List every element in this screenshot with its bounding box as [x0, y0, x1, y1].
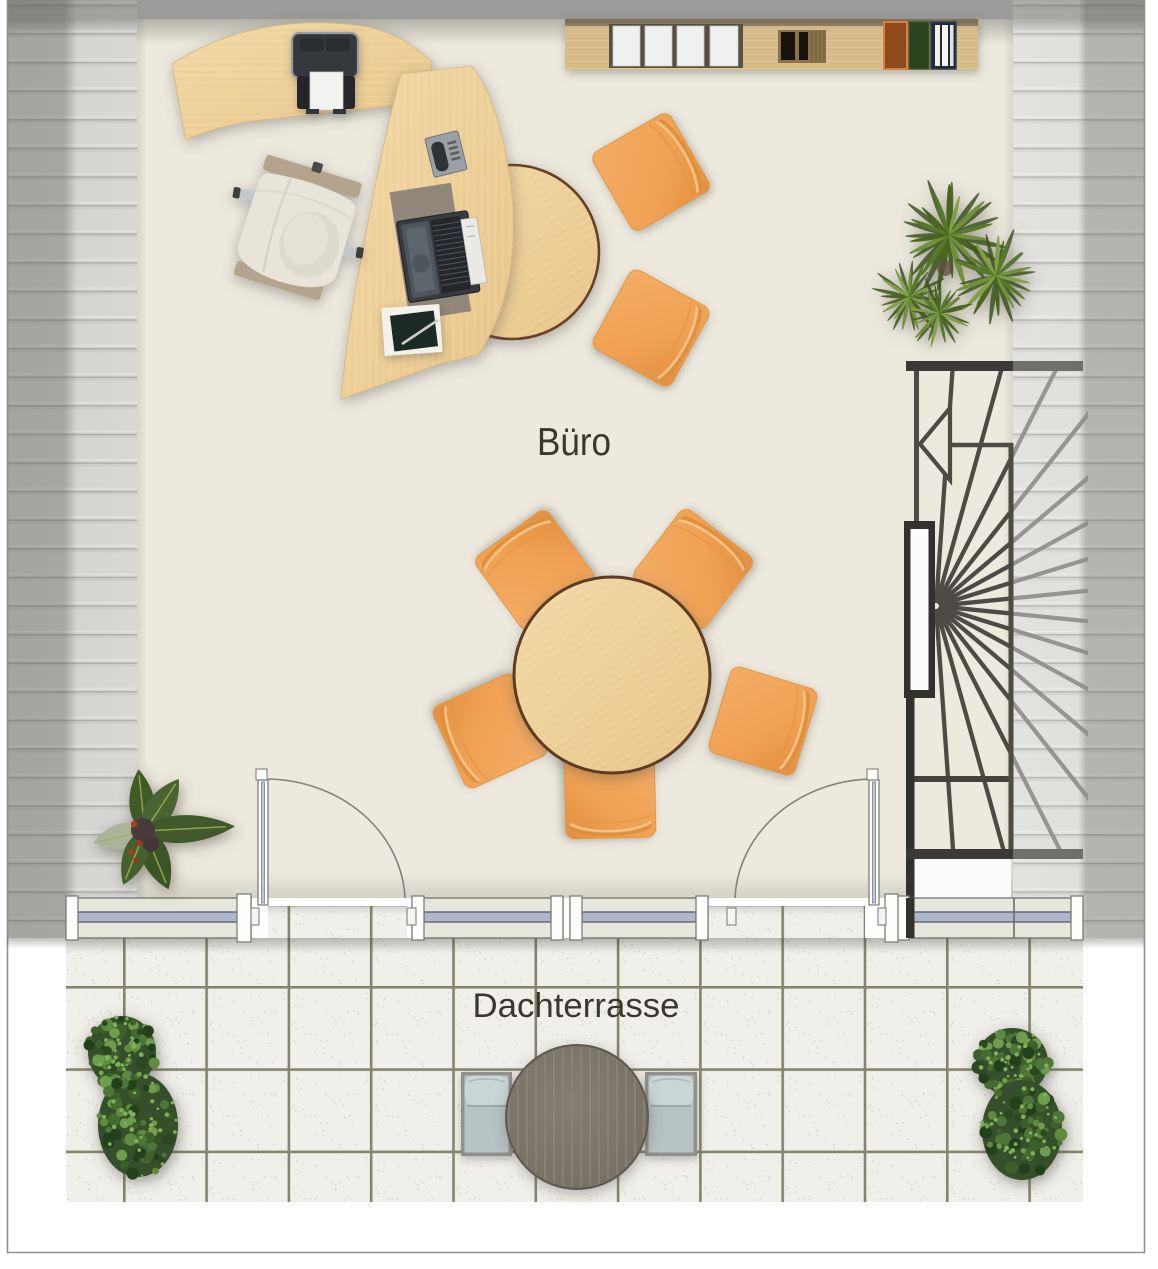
svg-text:Dachterrasse: Dachterrasse: [473, 987, 680, 1025]
svg-text:Büro: Büro: [537, 421, 611, 464]
